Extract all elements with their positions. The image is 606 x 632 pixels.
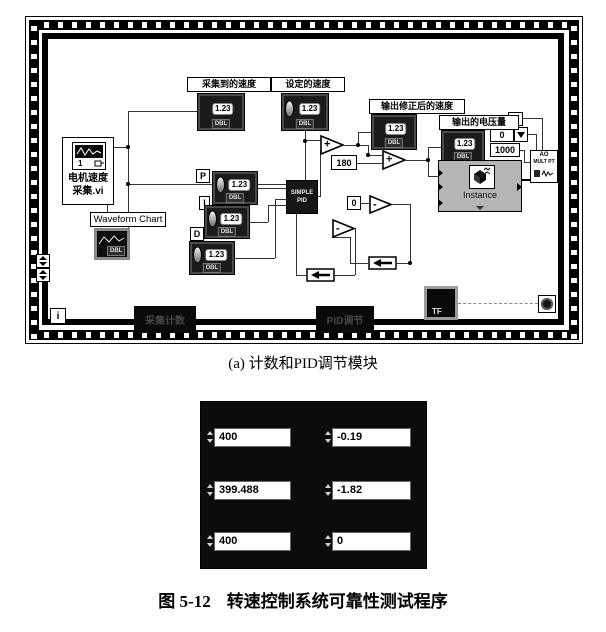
- collected-speed-label: 采集到的速度: [187, 77, 271, 92]
- wire: [350, 237, 351, 263]
- wire: [275, 199, 276, 258]
- plug-icon: [94, 159, 104, 168]
- wire: [523, 118, 542, 119]
- shift-register-terminal: [36, 268, 50, 282]
- minus-sign: -: [373, 198, 377, 210]
- numeric-glyph: 1.23: [229, 179, 251, 191]
- subvi-label-line1: 电机速度: [63, 172, 113, 185]
- wire: [320, 150, 321, 196]
- front-panel: 400 -0.19 399.488 -1.82 400 0: [200, 401, 427, 569]
- pid-block-line2: PID: [297, 197, 307, 205]
- add-node: +: [382, 150, 406, 170]
- chevron-down-icon: [517, 132, 525, 138]
- increment-decrement-buttons[interactable]: [324, 533, 332, 549]
- wire: [357, 163, 382, 164]
- wire: [275, 199, 286, 200]
- d-label: D: [190, 227, 204, 241]
- input-arrow-icon: [438, 169, 443, 177]
- type-tag: DBL: [218, 227, 236, 237]
- subvi-label-line2: 采集.vi: [63, 185, 113, 198]
- type-tag: DBL: [296, 119, 314, 129]
- feedback-node: [368, 256, 397, 270]
- motor-speed-subvi: 1 电机速度 采集.vi: [62, 137, 114, 205]
- corrected-speed-label: 输出修正后的速度: [369, 99, 465, 114]
- numeric-field-measured-speed[interactable]: 399.488: [214, 481, 291, 500]
- wire: [235, 258, 275, 259]
- knob-icon: [193, 247, 202, 264]
- scanned-figure-page: 1 电机速度 采集.vi Waveform Chart DBL 采集到的速度 1…: [0, 0, 606, 632]
- wire: [528, 134, 536, 135]
- numeric-glyph: 1.23: [385, 123, 407, 135]
- numeric-field-corrected-speed[interactable]: 400: [214, 532, 291, 551]
- increment-decrement-buttons[interactable]: [206, 533, 214, 549]
- instance-express-vi: Instance: [438, 160, 522, 212]
- loop-border-band-left: [29, 20, 39, 340]
- wire-junction: [126, 182, 130, 186]
- wire: [128, 111, 197, 112]
- wire: [258, 188, 286, 189]
- wire: [542, 118, 543, 150]
- constant-1000: 1000: [490, 143, 520, 157]
- shift-register-terminal: [36, 254, 50, 268]
- wire-junction: [408, 261, 412, 265]
- wire-junction: [303, 139, 307, 143]
- numeric-glyph: 1.23: [206, 249, 228, 261]
- waveform-glyph-icon: [533, 168, 555, 178]
- daq-assistant-icon: [469, 165, 495, 189]
- ao-mult-pt-vi: AO MULT PT: [530, 150, 558, 183]
- wire-junction: [126, 145, 130, 149]
- p-label: P: [196, 169, 210, 183]
- knob-icon: [208, 211, 217, 228]
- wire: [428, 176, 438, 177]
- waveform-chart-terminal: DBL: [94, 228, 130, 260]
- numeric-field-error-1[interactable]: -0.19: [332, 428, 411, 447]
- wire-junction: [356, 143, 360, 147]
- ao-label-line1: AO: [531, 152, 557, 159]
- increment-decrement-buttons[interactable]: [206, 482, 214, 498]
- numeric-glyph: 1.23: [221, 213, 243, 225]
- wire: [392, 204, 410, 205]
- wire-junction: [366, 153, 370, 157]
- set-speed-label: 设定的速度: [271, 77, 345, 92]
- frame-label-count: 采集计数: [134, 306, 196, 333]
- voltage-output-label: 输出的电压量: [439, 115, 519, 130]
- subvi-icon-digit: 1: [78, 159, 82, 168]
- wire: [428, 147, 441, 148]
- wire: [334, 275, 355, 276]
- wire: [296, 214, 297, 275]
- figure-caption: 图 5-12转速控制系统可靠性测试程序: [0, 587, 606, 612]
- wire: [410, 204, 411, 263]
- wire: [128, 184, 286, 185]
- tf-label: TF: [432, 307, 442, 316]
- wire-boolean: [458, 303, 538, 304]
- shift-arrows-icon: [38, 256, 48, 266]
- wire: [406, 160, 428, 161]
- wire: [305, 140, 321, 141]
- instance-label: Instance: [439, 190, 521, 200]
- wire: [250, 222, 268, 223]
- iteration-terminal: i: [50, 308, 66, 324]
- add-node: +: [320, 135, 344, 155]
- waveform-chart-label: Waveform Chart: [90, 212, 166, 227]
- collected-speed-indicator: 1.23 DBL: [197, 93, 245, 131]
- wire-junction: [426, 158, 430, 162]
- plus-sign: +: [386, 154, 392, 166]
- numeric-glyph: 1.23: [299, 103, 321, 115]
- set-speed-control: 1.23 DBL: [281, 93, 329, 131]
- constant-0: 0: [347, 196, 361, 210]
- loop-condition-terminal: [538, 295, 556, 313]
- subtract-node: -: [369, 195, 392, 214]
- input-arrow-icon: [438, 199, 443, 207]
- pid-block-line1: SIMPLE: [291, 189, 313, 197]
- voltage-output-indicator: 1.23 DBL: [441, 130, 485, 164]
- feedback-node: [306, 268, 335, 282]
- numeric-field-error-2[interactable]: -1.82: [332, 481, 411, 500]
- wire: [268, 205, 269, 222]
- minus-sign: -: [336, 222, 340, 234]
- loop-border-band-top: [29, 20, 579, 30]
- numeric-glyph: 1.23: [454, 138, 476, 150]
- wire: [355, 228, 356, 275]
- wire: [524, 150, 525, 162]
- figure-title: 转速控制系统可靠性测试程序: [227, 592, 448, 611]
- type-tag: DBL: [212, 119, 230, 129]
- plus-sign: +: [324, 139, 330, 151]
- i-gain-control: 1.23 DBL: [204, 205, 250, 239]
- wire: [318, 196, 321, 197]
- figure-number: 图 5-12: [158, 592, 210, 611]
- type-tag: DBL: [226, 193, 244, 203]
- type-tag: DBL: [385, 138, 403, 148]
- d-gain-control: 1.23 DBL: [189, 241, 235, 275]
- wire-data: [522, 179, 530, 181]
- wire: [361, 203, 369, 204]
- numeric-glyph: 1.23: [212, 103, 234, 115]
- subvi-icon: 1: [72, 142, 106, 170]
- shift-arrows-icon: [38, 270, 48, 280]
- knob-icon: [216, 177, 225, 194]
- wire: [268, 205, 286, 206]
- ao-label-line2: MULT PT: [531, 159, 557, 165]
- knob-icon: [285, 101, 294, 118]
- subtract-node: -: [332, 219, 355, 238]
- wire: [536, 134, 537, 150]
- p-gain-control: 1.23 DBL: [212, 171, 258, 205]
- numeric-field-set-speed[interactable]: 400: [214, 428, 291, 447]
- increment-decrement-buttons[interactable]: [324, 429, 332, 445]
- loop-border-band-right: [569, 20, 579, 340]
- expand-chevron-icon: [476, 206, 484, 210]
- subfigure-caption: (a) 计数和PID调节模块: [0, 352, 606, 373]
- wire: [358, 132, 371, 133]
- increment-decrement-buttons[interactable]: [324, 482, 332, 498]
- wire: [350, 263, 368, 264]
- frame-label-pid: PID调节: [316, 306, 374, 333]
- corrected-speed-indicator: 1.23 DBL: [371, 114, 417, 150]
- numeric-field-error-3[interactable]: 0: [332, 532, 411, 551]
- constant-180: 180: [331, 155, 357, 170]
- simple-pid-block: SIMPLE PID: [286, 180, 318, 214]
- stop-boolean-terminal[interactable]: TF: [424, 286, 458, 320]
- wire: [368, 155, 382, 156]
- loop-border-band-bottom: [29, 330, 579, 340]
- wire: [296, 275, 306, 276]
- increment-decrement-buttons[interactable]: [206, 429, 214, 445]
- type-tag: DBL: [203, 263, 221, 273]
- chart-type-tag: DBL: [107, 246, 125, 256]
